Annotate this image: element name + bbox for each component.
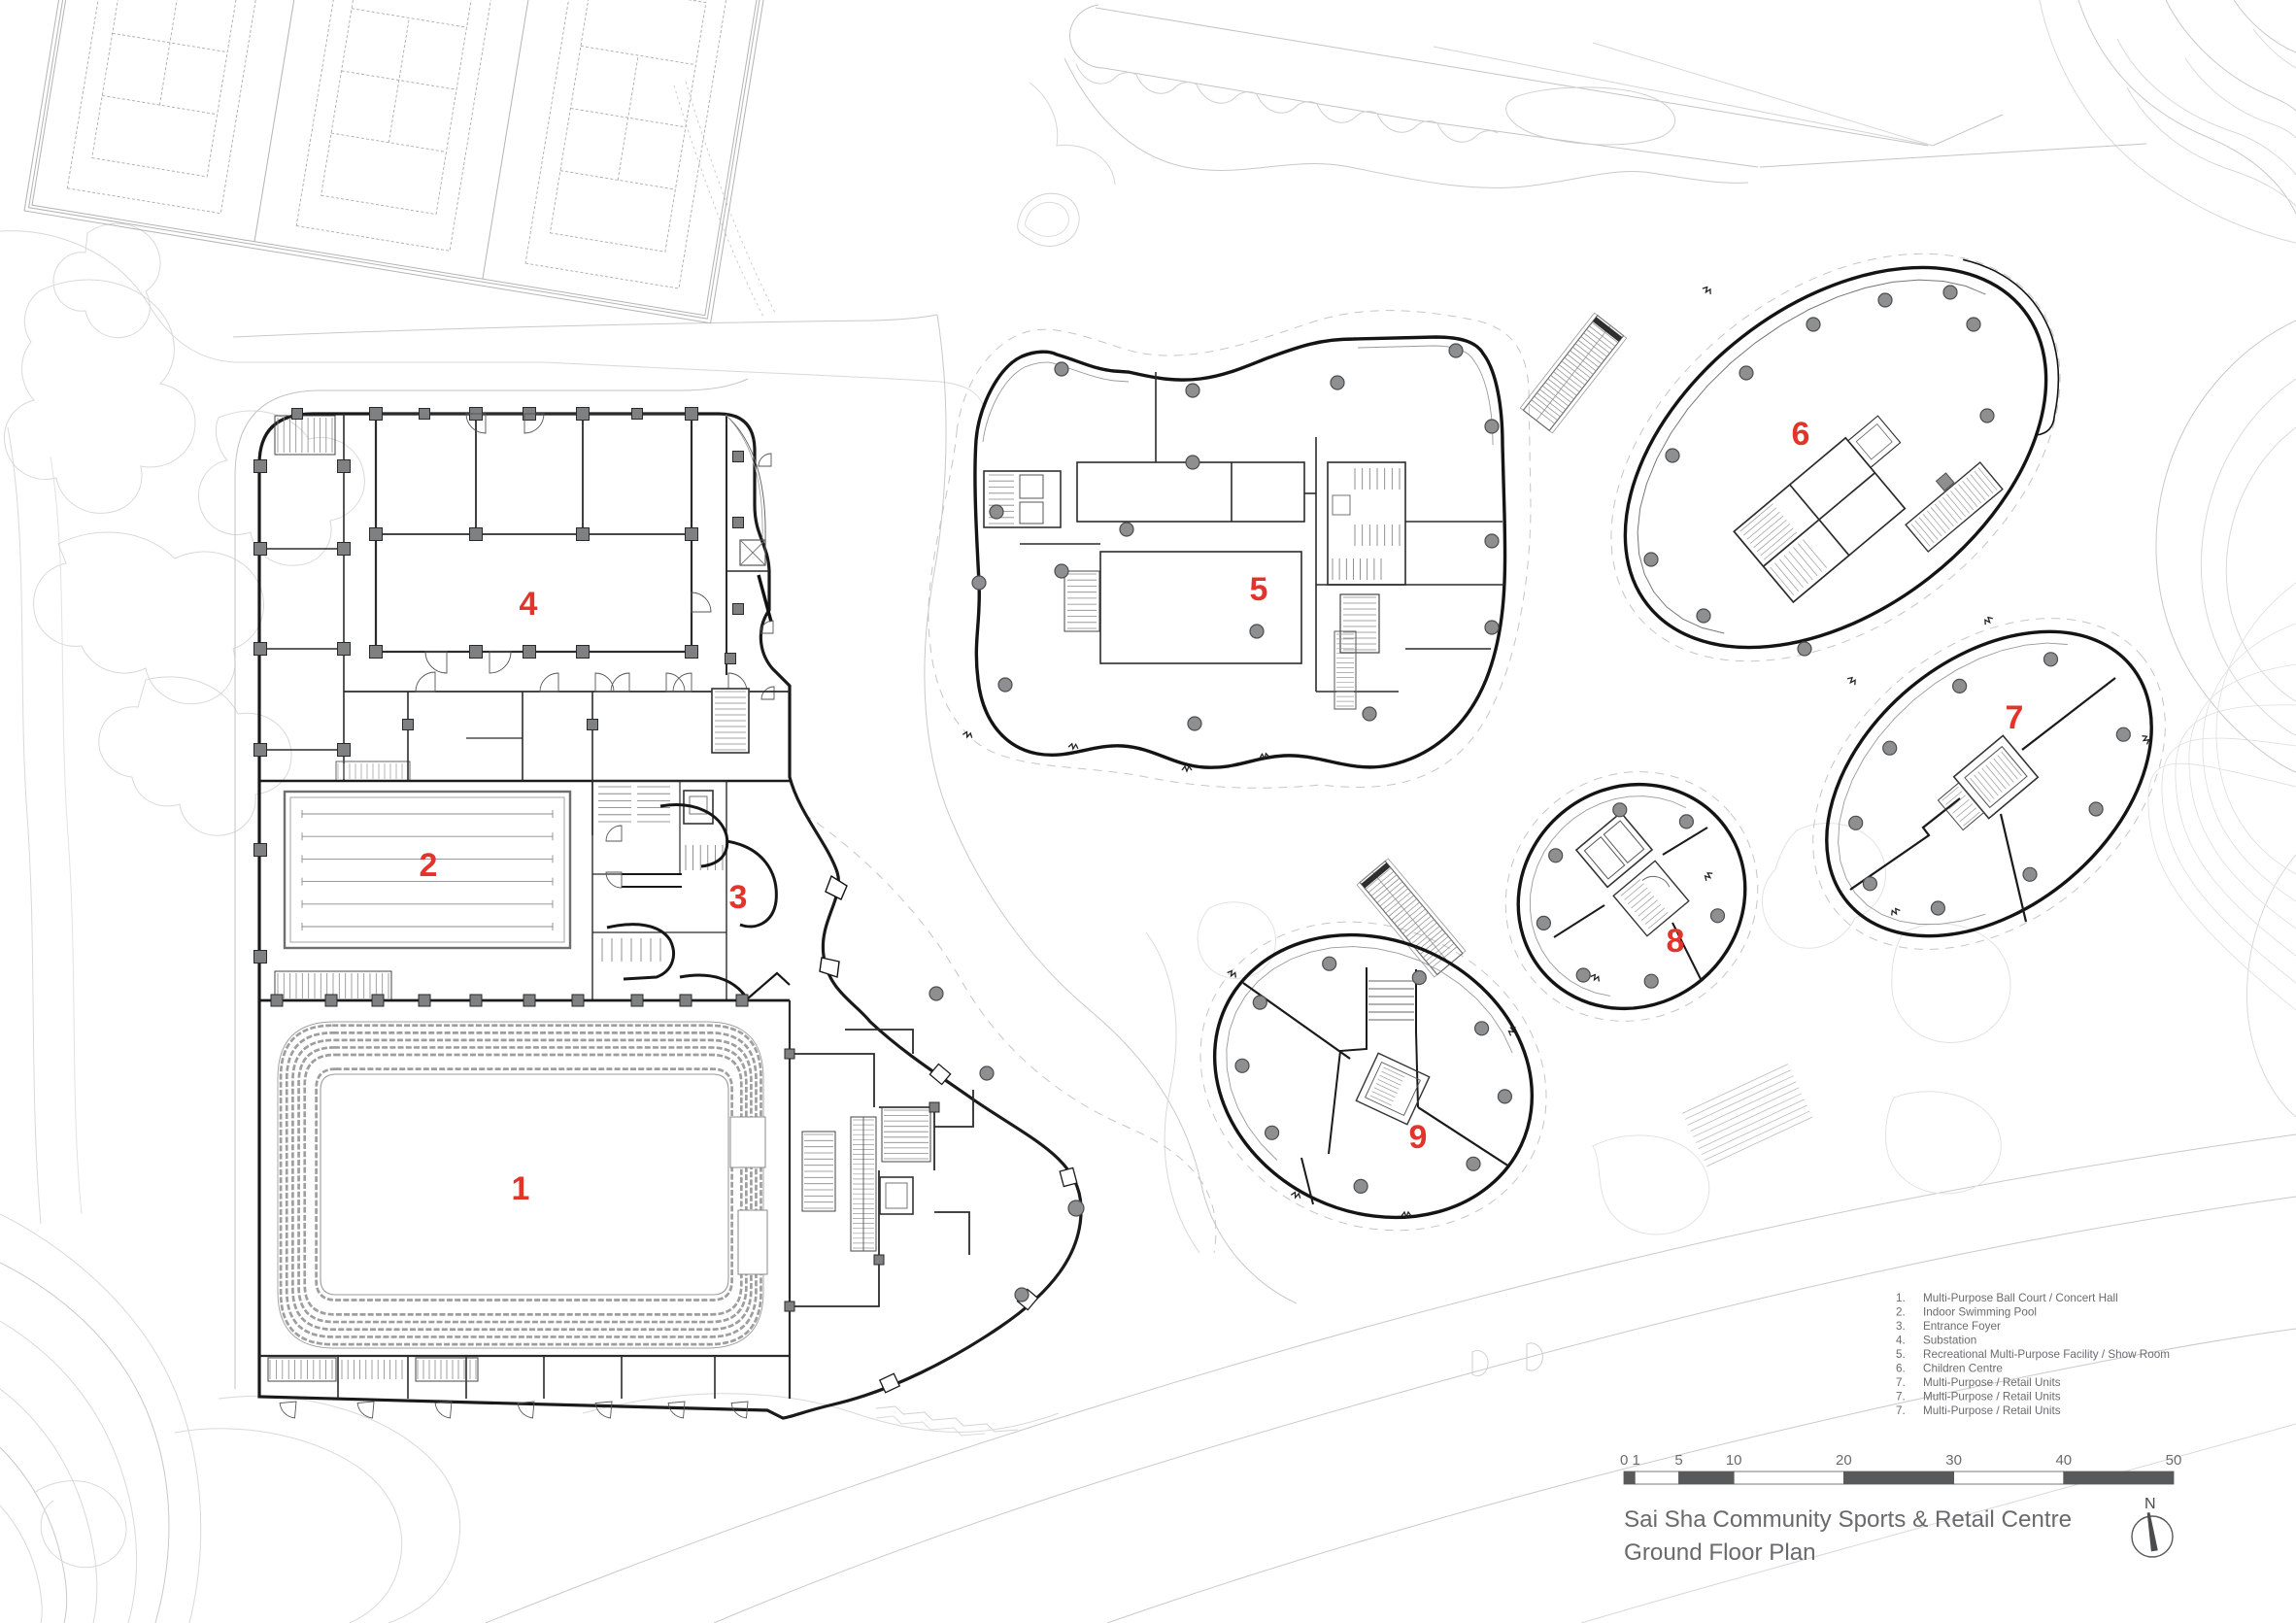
svg-text:40: 40 (2055, 1452, 2072, 1469)
svg-text:3: 3 (729, 879, 748, 916)
svg-text:50: 50 (2166, 1452, 2182, 1469)
svg-text:Recreational Multi-Purpose Fac: Recreational Multi-Purpose Facility / Sh… (1923, 1348, 2170, 1361)
svg-text:2: 2 (420, 847, 438, 884)
svg-text:Multi-Purpose / Retail Units: Multi-Purpose / Retail Units (1923, 1376, 2061, 1389)
svg-text:Multi-Purpose / Retail Units: Multi-Purpose / Retail Units (1923, 1391, 2061, 1403)
svg-text:7: 7 (2006, 699, 2024, 736)
svg-text:0 1: 0 1 (1620, 1452, 1640, 1469)
svg-text:Indoor Swimming Pool: Indoor Swimming Pool (1923, 1306, 2037, 1319)
svg-text:Entrance Foyer: Entrance Foyer (1923, 1320, 2001, 1333)
svg-text:7.: 7. (1896, 1376, 1906, 1389)
svg-text:4.: 4. (1896, 1335, 1906, 1347)
svg-text:Substation: Substation (1923, 1335, 1976, 1347)
svg-text:Ground Floor Plan: Ground Floor Plan (1624, 1539, 1816, 1566)
svg-text:Multi-Purpose / Retail Units: Multi-Purpose / Retail Units (1923, 1404, 2061, 1417)
svg-text:6.: 6. (1896, 1363, 1906, 1375)
svg-text:3.: 3. (1896, 1320, 1906, 1333)
svg-text:20: 20 (1836, 1452, 1852, 1469)
svg-text:Children Centre: Children Centre (1923, 1363, 2003, 1375)
svg-text:6: 6 (1792, 416, 1810, 453)
svg-text:7.: 7. (1896, 1391, 1906, 1403)
svg-text:2.: 2. (1896, 1306, 1906, 1319)
svg-text:30: 30 (1945, 1452, 1962, 1469)
svg-text:8: 8 (1667, 923, 1685, 960)
svg-text:5: 5 (1674, 1452, 1682, 1469)
svg-text:Multi-Purpose Ball Court / Con: Multi-Purpose Ball Court / Concert Hall (1923, 1292, 2118, 1304)
svg-text:9: 9 (1409, 1119, 1428, 1156)
svg-text:Sai Sha Community Sports & Ret: Sai Sha Community Sports & Retail Centre (1624, 1506, 2072, 1533)
svg-text:7.: 7. (1896, 1404, 1906, 1417)
svg-text:N: N (2144, 1496, 2156, 1512)
svg-text:10: 10 (1726, 1452, 1742, 1469)
svg-text:1: 1 (512, 1170, 530, 1207)
svg-text:5: 5 (1250, 571, 1268, 608)
svg-text:1.: 1. (1896, 1292, 1906, 1304)
svg-text:5.: 5. (1896, 1348, 1906, 1361)
svg-text:4: 4 (520, 586, 538, 623)
